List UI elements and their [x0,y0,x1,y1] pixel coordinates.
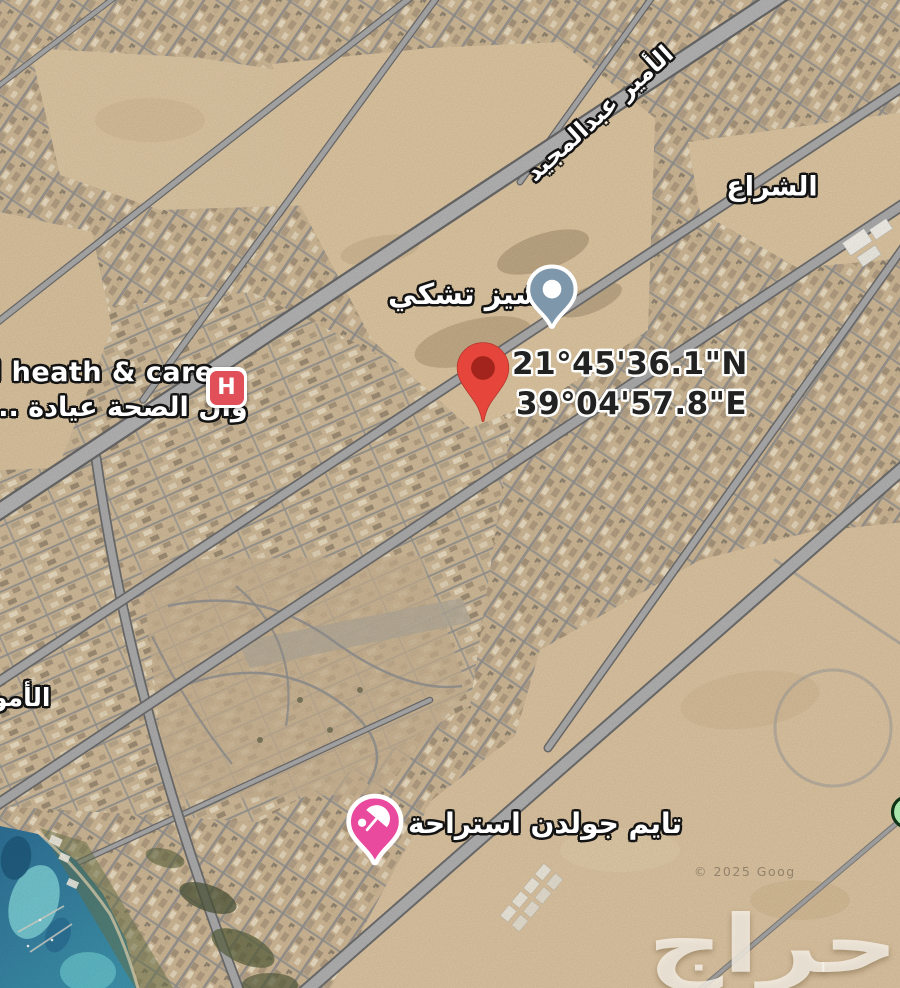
hospital-icon-letter: H [210,371,244,405]
haraj-watermark: حراج [648,898,898,988]
location-pin-center [471,356,495,380]
district-label-partial: الأمو [0,684,51,713]
location-pin[interactable] [452,338,514,430]
poi-label-resort[interactable]: تايم جولدن استراحة [408,808,682,840]
green-poi-marker-partial[interactable] [884,790,900,834]
pin-coordinates-lat: 21°45'36.1"N [512,344,748,384]
poi-pin-cheesecake[interactable] [524,262,580,334]
hospital-icon[interactable]: H [206,367,247,408]
poi-pin-center-dot [543,280,562,299]
imagery-copyright: © 2025 Goog [694,864,796,879]
district-label-alsheraa: الشراع [726,171,817,202]
resort-pin[interactable] [344,792,406,870]
satellite-map[interactable]: الأمير عبدالمجيد الشراع الأمو تشيز تشكي … [0,0,900,988]
poi-label-clinic-en[interactable]: l heath & care [0,357,214,388]
pin-coordinates: 21°45'36.1"N 39°04'57.8"E [512,344,748,424]
pin-coordinates-lon: 39°04'57.8"E [512,384,748,424]
